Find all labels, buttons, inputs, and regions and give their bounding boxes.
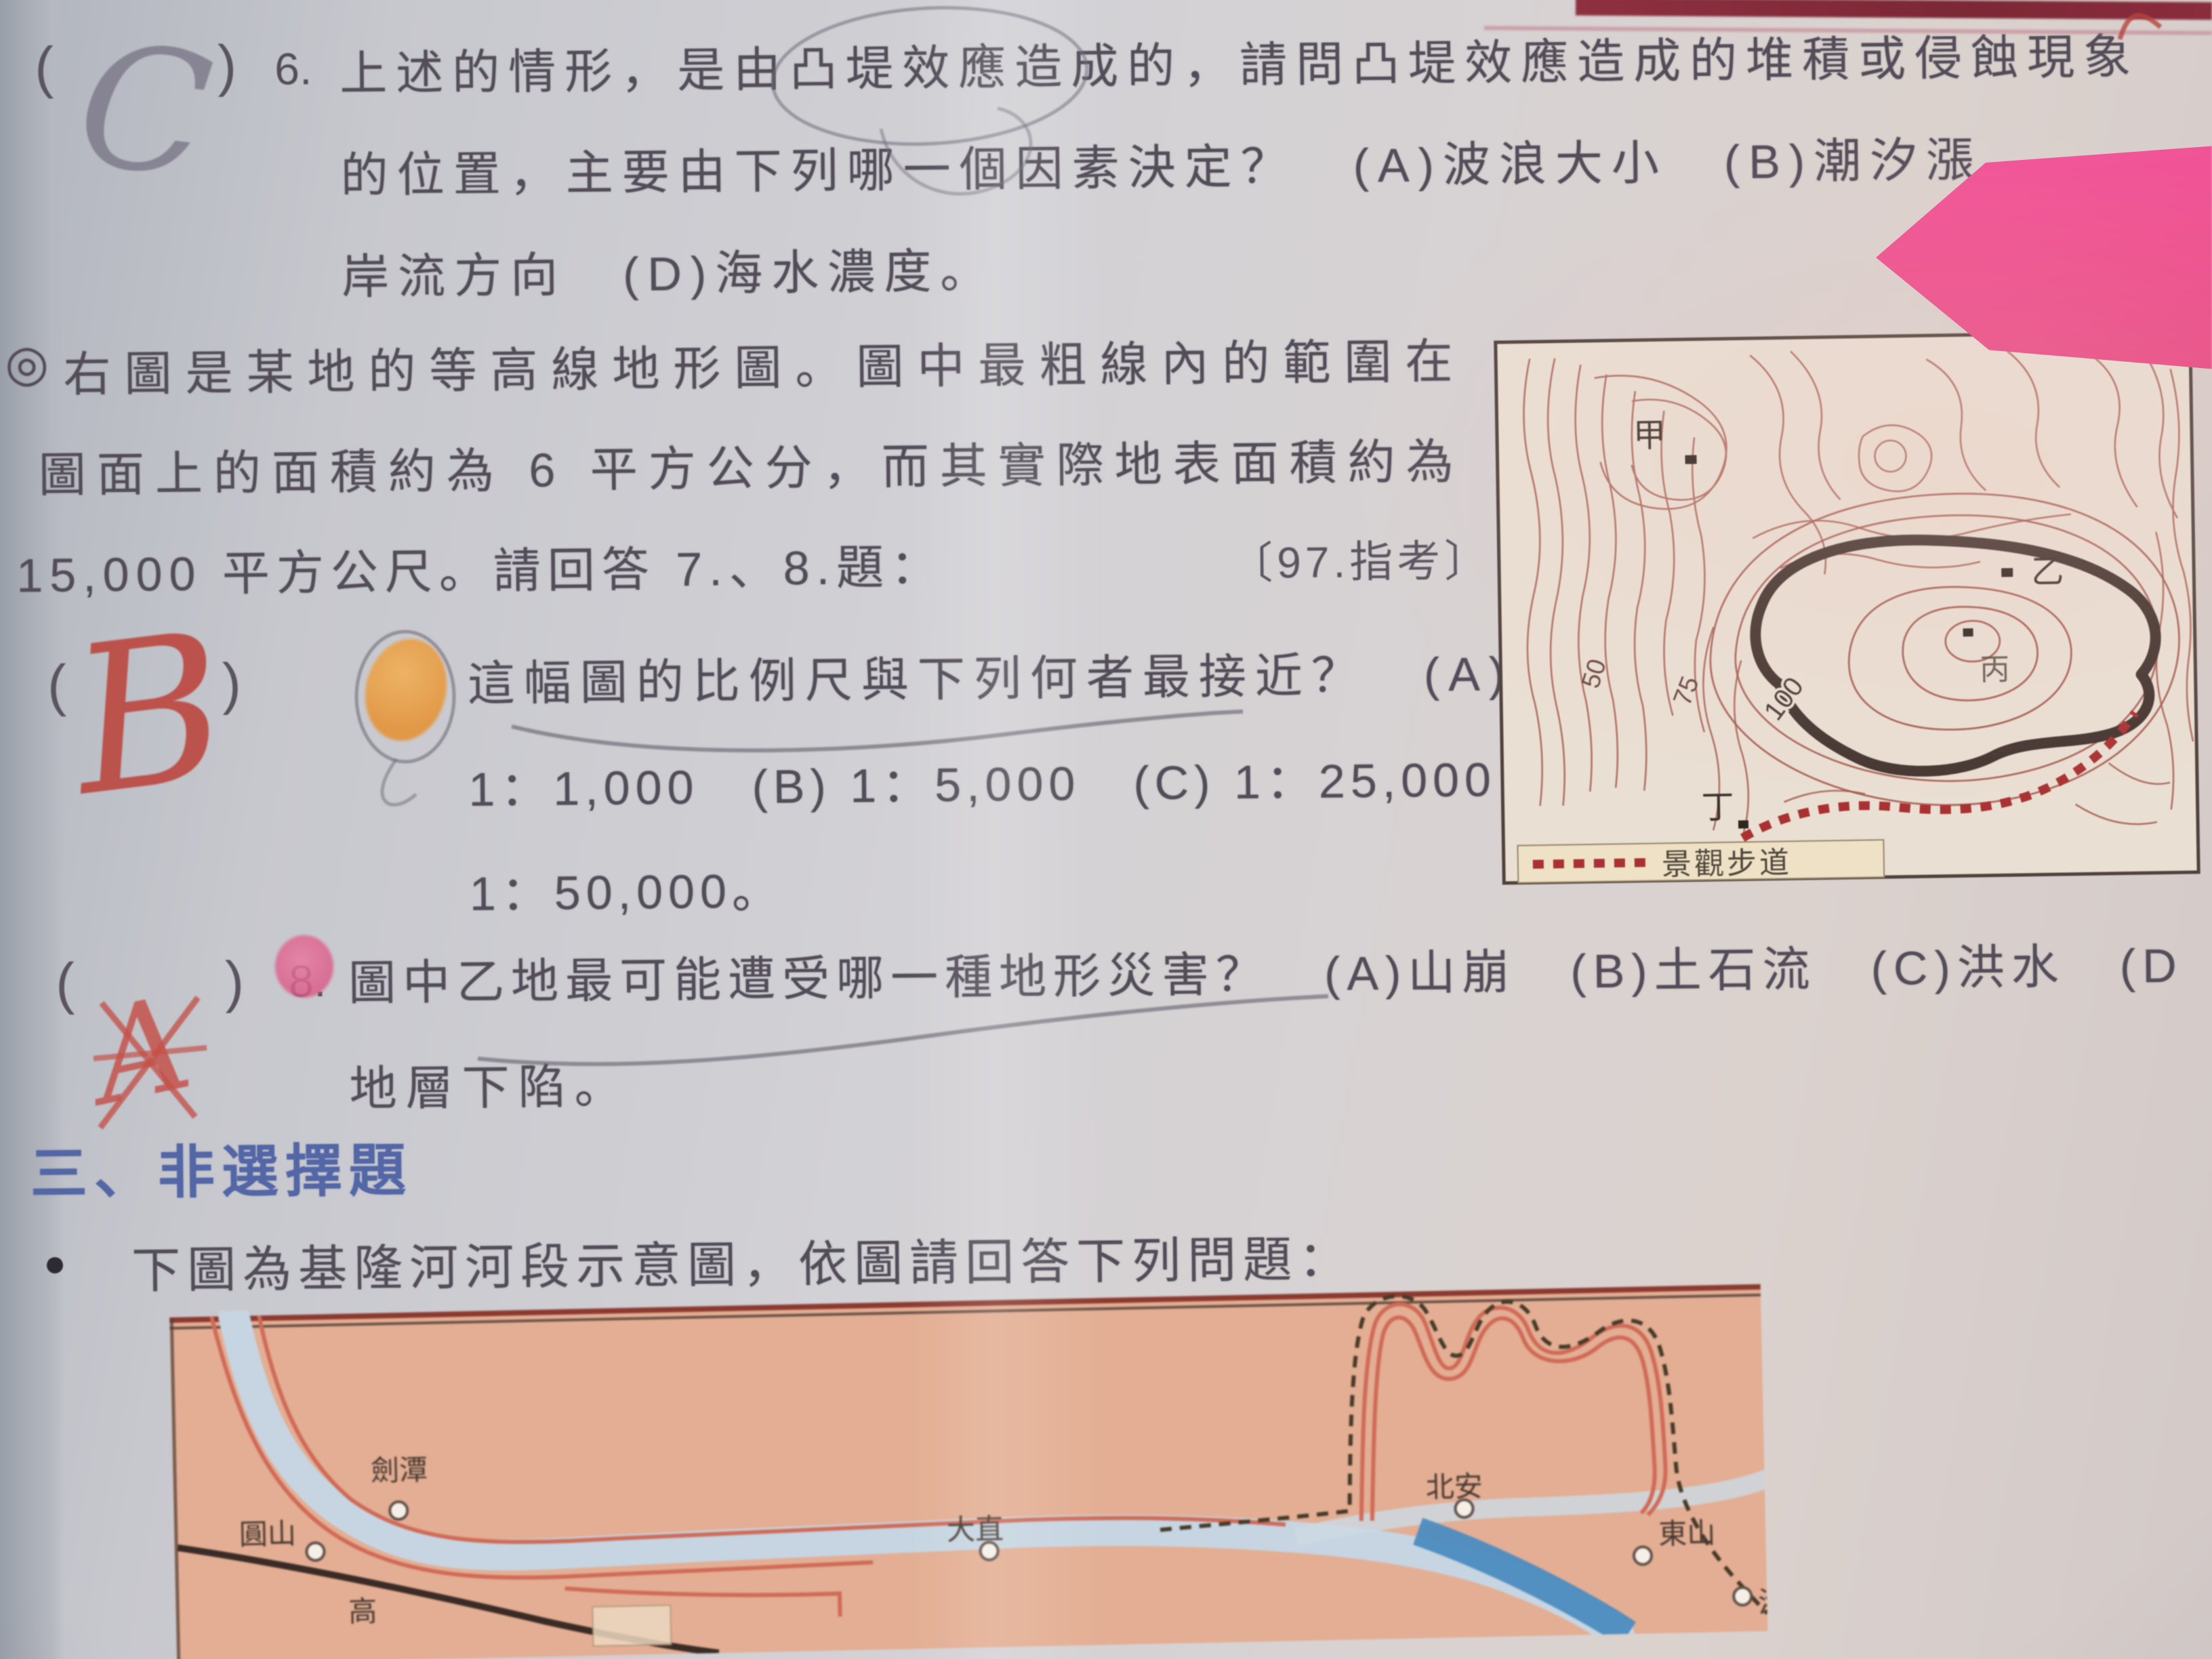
river-segment-map: 劍潭 圓山 高 大直 北安 東山 港墘: [169, 1279, 1767, 1659]
q8-answer-paren-open: (: [56, 951, 75, 1017]
q7-line3: 1：50,000。: [469, 853, 785, 924]
label-dongshan: 東山: [1658, 1517, 1716, 1550]
label-gao: 高: [348, 1595, 377, 1628]
q6-line2: 的位置，主要由下列哪一個因素決定？ (A)波浪大小 (B)潮汐漲: [340, 122, 1982, 206]
label-yuanshan: 圓山: [239, 1517, 296, 1551]
q6-answer-paren-close: ): [218, 33, 237, 98]
stimulus-line2: 圖面上的面積約為 6 平方公分，而其實際地表面積約為: [38, 424, 1465, 506]
q8-answer-paren-close: ): [225, 949, 245, 1015]
label-jiantan: 劍潭: [370, 1454, 428, 1487]
stimulus-marker-icon: ◎: [5, 334, 58, 393]
topo-map-border: [1496, 331, 2198, 883]
topo-label-bing: 丙: [1980, 653, 2010, 687]
red-answer-q7: B: [61, 588, 238, 841]
label-dazhi: 大直: [946, 1513, 1004, 1546]
q7-line1: 這幅圖的比例尺與下列何者最接近？ (A): [467, 636, 1513, 714]
bullet-question-text: 下圖為基隆河河段示意圖，依圖請回答下列問題：: [131, 1219, 1355, 1302]
q7-answer-paren-close: ): [222, 651, 241, 716]
legend-label: 景觀步道: [1662, 846, 1793, 881]
topo-label-yi: 乙: [2031, 554, 2064, 590]
label-beian: 北安: [1425, 1470, 1483, 1503]
q6-line3: 岸流方向 (D)海水濃度。: [342, 233, 997, 308]
topo-label-jia: 甲: [1633, 417, 1666, 454]
section3-title: 三、非選擇題: [30, 1125, 413, 1210]
label-gangqian: 港墘: [1758, 1585, 1767, 1618]
q6-number: 6.: [274, 43, 312, 95]
pink-marker-q8-number: [275, 935, 333, 998]
pencil-answer-q6: C: [68, 5, 221, 216]
q7-answer-paren-open: (: [47, 653, 66, 718]
photographed-textbook-page: ( ) 6. 上述的情形，是由凸堤效應造成的，請問凸堤效應造成的堆積或侵蝕現象 …: [0, 0, 2212, 1659]
topo-label-ding: 丁: [1701, 790, 1734, 826]
topo-legend: 景觀步道: [1517, 840, 1884, 883]
q8-line1: 圖中乙地最可能遭受哪一種地形災害？ (A)山崩 (B)土石流 (C)洪水 (D: [348, 928, 2184, 1014]
map-label-box: [592, 1605, 671, 1646]
stimulus-source: 〔97.指考〕: [1229, 527, 1492, 592]
topographic-contour-map: 甲 乙 丙 丁 50 75 100 景觀步道: [1492, 328, 2206, 888]
q8-line2: 地層下陷。: [349, 1048, 631, 1120]
stimulus-line1: 右圖是某地的等高線地形圖。圖中最粗線內的範圍在: [63, 323, 1467, 405]
bullet-icon: ●: [43, 1241, 66, 1285]
q7-line2: 1：1,000 (B) 1：5,000 (C) 1：25,000 (D): [468, 741, 1632, 820]
q6-answer-paren-open: (: [35, 35, 54, 100]
